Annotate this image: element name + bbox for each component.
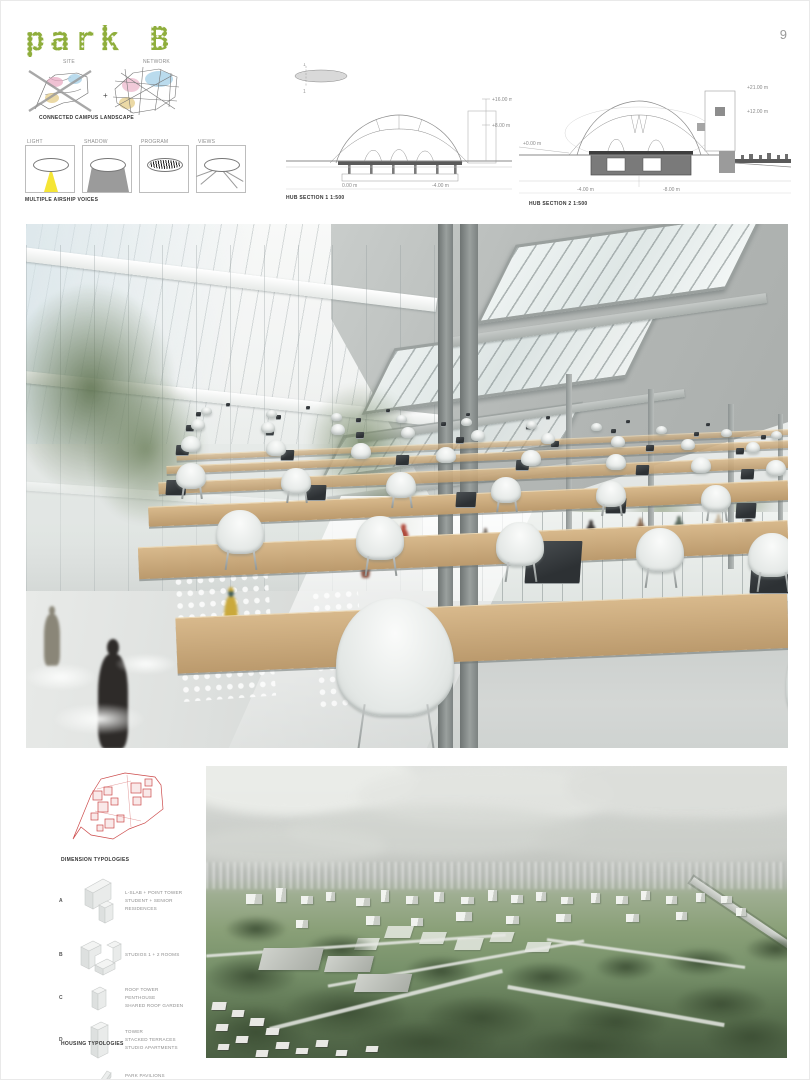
chair [216,510,264,554]
chair [596,481,626,507]
dim-bottom-mid: -8.00 m [663,187,680,193]
building [406,896,418,904]
typology-item-D: DTOWERSTACKED TERRACESSTUDIO APARTMENTS [59,1019,203,1061]
site-maps-drawing [25,67,195,117]
dim-right-mid: +12.00 m [747,109,768,115]
building [696,893,705,902]
laptop [626,420,630,423]
laptop [455,492,476,507]
chair [266,440,286,456]
rooftop [255,1050,268,1057]
concept-box-label: PROGRAM [141,139,168,145]
chair [331,424,345,435]
building [721,896,732,903]
hub-section-2-drawing: +21.00 m +12.00 m +0.00 m -4.00 m -8.00 … [519,63,791,205]
person [44,614,60,666]
cloud [536,818,787,862]
tree-clump [356,1022,496,1058]
rooftop [365,1046,378,1052]
typology-axon-icon [73,875,125,927]
building [326,892,335,901]
rooftop [275,1042,289,1049]
laptop [611,429,616,433]
section-key-top: 1 [303,63,306,68]
rooftop [215,1024,228,1031]
chair [611,436,625,447]
hub-section-2-caption: HUB SECTION 2 1:500 [529,201,588,207]
tree-clump [596,954,656,980]
rooftop [217,1044,229,1050]
chair [281,468,311,494]
chair [331,413,342,421]
typology-key: A [59,898,73,904]
typology-label: TOWERSTACKED TERRACESSTUDIO APARTMENTS [125,1028,199,1051]
concept-row-caption: MULTIPLE AIRSHIP VOICES [25,197,98,203]
interior-rendering [26,224,788,748]
laptop [546,416,550,419]
chair [436,447,456,463]
building [506,916,519,924]
large-roof [324,956,374,972]
typology-axon-icon [73,1019,125,1061]
dim-left: +0.00 m [523,141,541,147]
tree-clump [226,916,286,942]
rooftop [235,1036,248,1043]
building [461,897,474,904]
building [296,920,308,928]
building [276,888,286,902]
building [246,894,262,904]
laptop [441,422,446,426]
dim-bottom-left: -4.00 m [577,187,594,193]
laptop [646,445,654,451]
concrete-column [460,224,478,748]
cafe-furniture [26,664,96,690]
building [356,898,370,906]
large-roof [258,948,323,970]
concept-box-label: SHADOW [84,139,108,145]
building [561,897,573,904]
aerial-rendering [206,766,787,1058]
chair [541,433,555,444]
building [366,916,380,925]
concept-box-program: PROGRAM [139,145,189,193]
chair [356,516,404,560]
concept-box-label: VIEWS [198,139,215,145]
laptop [736,448,744,454]
tree-clump [746,936,787,962]
chair [748,533,788,577]
rooftop [335,1050,347,1056]
dim-right-top: +16.00 m [492,97,512,103]
chair [396,415,407,423]
typology-item-B: BSTUDIOS 1 + 2 ROOMS [59,933,203,977]
laptop [356,418,361,422]
chair [681,439,695,450]
chair [521,450,541,466]
typology-item-A: AL-SLAB + POINT TOWERSTUDENT + SENIORRES… [59,875,203,927]
rooftop [231,1010,244,1017]
program-scribble-icon [149,160,181,169]
typology-axon-icon [73,1067,125,1080]
chair [496,522,544,566]
building [591,893,600,903]
section-key-bottom: 1 [303,89,306,95]
dim-right-mid: +8.00 m [492,123,510,129]
typology-key: B [59,952,73,958]
rooftop [265,1028,279,1035]
laptop [706,423,710,426]
site-maps-diagram: SITE NETWORK + [25,59,195,125]
laptop [761,435,766,439]
rooftop [211,1002,226,1010]
chair [766,460,786,476]
laptop [396,455,409,465]
typology-list: AL-SLAB + POINT TOWERSTUDENT + SENIORRES… [59,875,203,1080]
dim-bottom-left: 0.00 m [342,183,357,189]
chair [691,457,711,473]
concept-box-shadow: SHADOW [82,145,132,193]
rooftop [295,1048,308,1054]
typology-label: ROOF TOWERPENTHOUSESHARED ROOF GARDEN [125,986,199,1009]
hub-section-1-drawing: 1 1 [286,63,512,201]
tree-clump [526,1028,656,1058]
building [411,918,423,926]
cafe-furniture [116,654,176,674]
building [456,912,472,921]
laptop [306,406,310,409]
chair [266,410,277,418]
building [536,892,546,901]
chair [701,485,731,511]
concept-diagram-row: LIGHT SHADOW PROGRAM VIEWS [25,137,253,207]
plus-sign: + [103,91,108,100]
hub-section-1-caption: HUB SECTION 1 1:500 [286,195,345,201]
red-site-plan [67,765,177,855]
typology-item-E: EPARK PAVILIONSSCATTERED UNITSIN THE GRE… [59,1067,203,1080]
typology-label: PARK PAVILIONSSCATTERED UNITSIN THE GREE… [125,1072,199,1080]
chair [201,407,212,415]
concept-box-label: LIGHT [27,139,43,145]
building [676,912,687,920]
chair [401,427,415,438]
large-roof [354,974,412,992]
hub-section-2: +21.00 m +12.00 m +0.00 m -4.00 m -8.00 … [519,63,791,215]
cloud [566,766,787,821]
concept-box-light: LIGHT [25,145,75,193]
plan-caption: DIMENSION TYPOLOGIES [61,857,129,863]
chair [471,430,485,441]
chair [351,443,371,459]
building [511,895,523,903]
page-title: park B [25,19,174,58]
typology-key: C [59,995,73,1001]
chair [526,421,537,429]
chair [746,442,760,453]
building [381,890,389,902]
laptop [694,432,699,436]
building [556,914,571,922]
chair [591,423,602,431]
building [301,896,313,904]
cafe-furniture [54,704,144,734]
hub-blob-icon [204,158,240,172]
hub-blob-icon [90,158,126,172]
presentation-board: park B 9 SITE NETWORK [0,0,810,1080]
chair [721,429,732,437]
typologies-panel: DIMENSION TYPOLOGIES AL-SLAB + POINT TOW… [59,763,203,1063]
typology-axon-icon [73,983,125,1013]
typology-item-C: CROOF TOWERPENTHOUSESHARED ROOF GARDEN [59,983,203,1013]
chair [656,426,667,434]
chair [771,431,782,439]
dim-bottom-right: -4.00 m [432,183,449,189]
laptop [356,432,364,438]
development-slab [384,926,414,938]
building [641,891,650,900]
chair [336,598,454,716]
page-number: 9 [780,27,787,42]
chair [636,528,684,572]
site-map-right-label: NETWORK [143,59,170,65]
laptop [226,403,230,406]
chair [191,419,205,430]
hub-blob-icon [33,158,69,172]
building [666,896,677,904]
building [434,892,444,902]
building [616,896,628,904]
laptop [636,465,649,475]
building [626,914,639,922]
chair [176,463,206,489]
rooftop [249,1018,264,1026]
cloud [206,826,386,866]
chair [386,472,416,498]
chair [261,422,275,433]
building [736,908,746,916]
chair [606,454,626,470]
laptop [741,469,754,479]
concept-box-views: VIEWS [196,145,246,193]
chair [491,477,521,503]
laptop [456,437,464,443]
hub-section-1: 1 1 [286,63,512,211]
typology-axon-icon [73,933,125,977]
typology-label: STUDIOS 1 + 2 ROOMS [125,951,199,959]
laptop [735,503,756,518]
chair [181,436,201,452]
site-maps-caption: CONNECTED CAMPUS LANDSCAPE [39,115,134,121]
site-map-left-label: SITE [63,59,75,65]
dim-right-top: +21.00 m [747,85,768,91]
laptop [466,413,470,416]
building [488,890,497,901]
typologies-footer-caption: HOUSING TYPOLOGIES [61,1041,124,1047]
chair [461,418,472,426]
rooftop [315,1040,328,1047]
typology-label: L-SLAB + POINT TOWERSTUDENT + SENIORRESI… [125,889,199,912]
